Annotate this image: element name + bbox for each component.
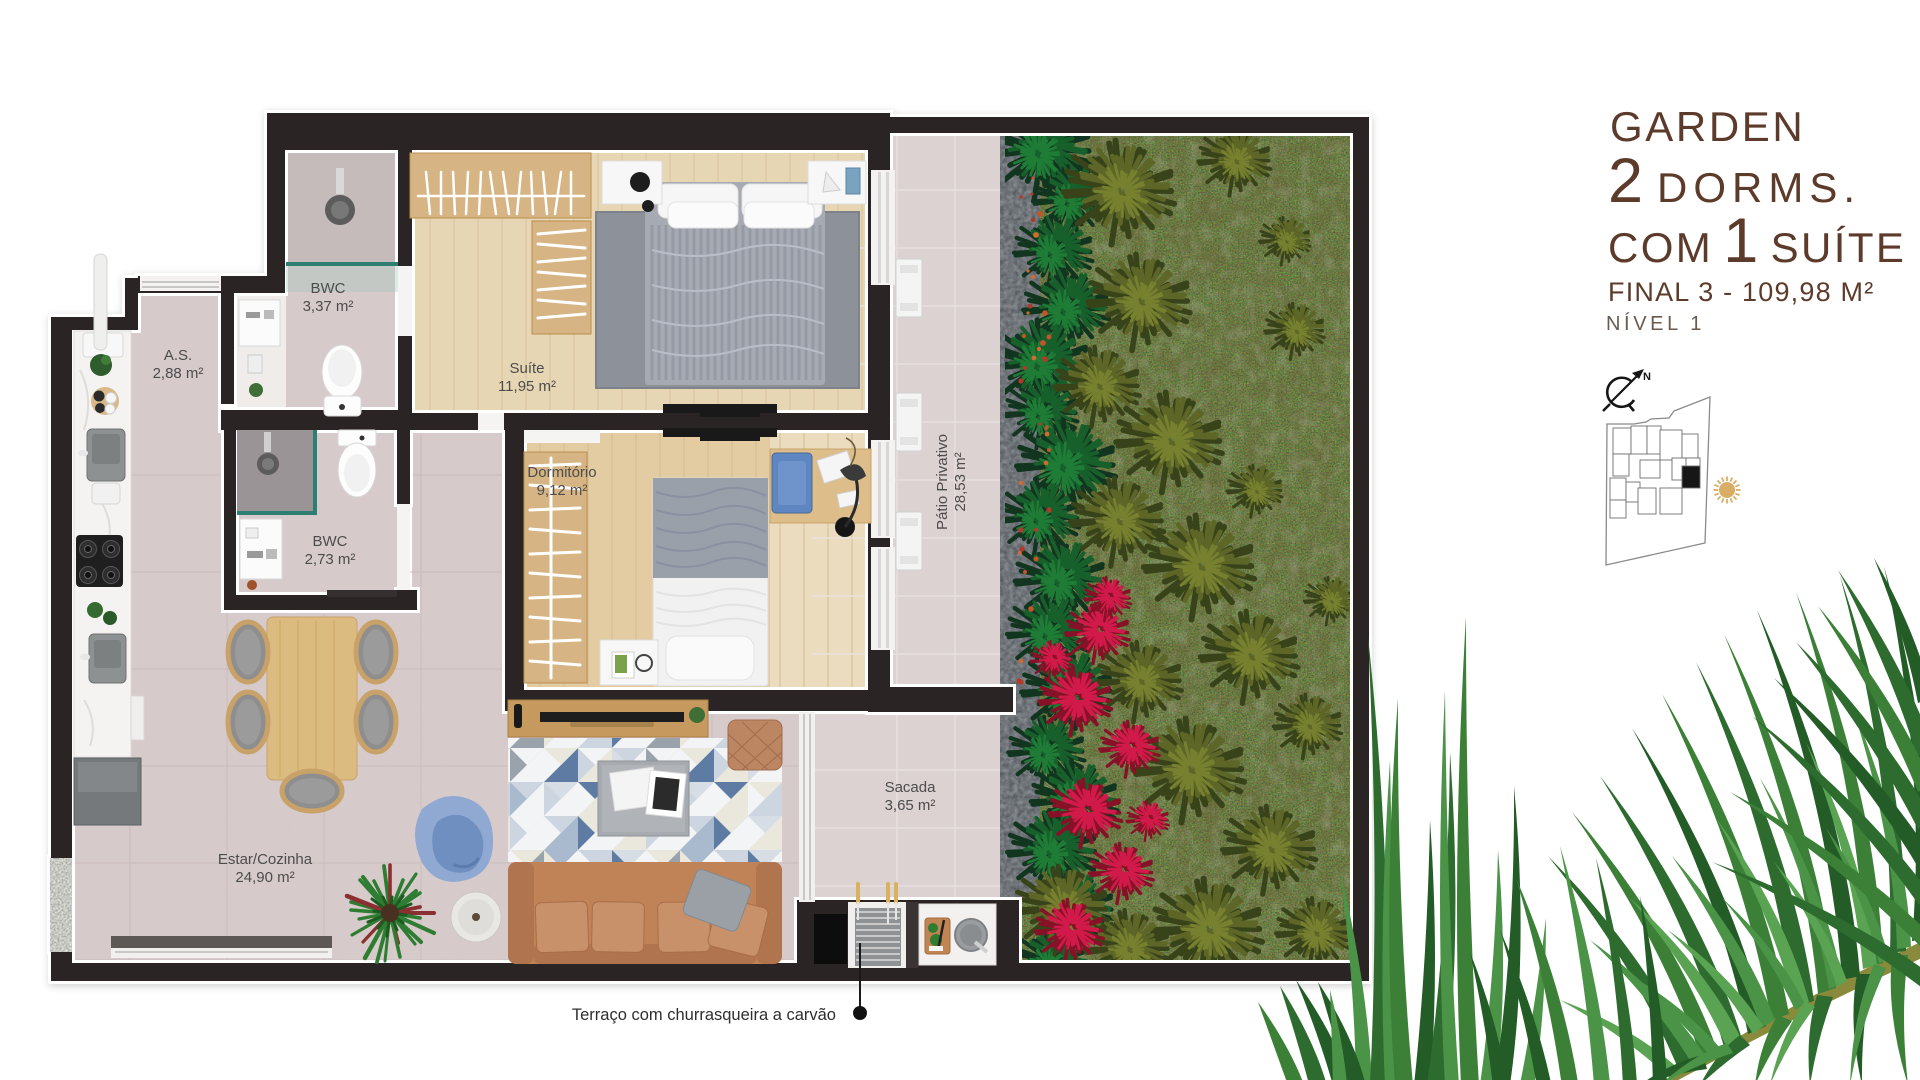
svg-text:2,88 m²: 2,88 m²: [153, 365, 204, 382]
svg-text:Dormitório: Dormitório: [527, 464, 596, 481]
svg-text:Terraço com churrasqueira a ca: Terraço com churrasqueira a carvão: [572, 1006, 836, 1024]
svg-text:A.S.: A.S.: [164, 347, 192, 364]
svg-text:NÍVEL 1: NÍVEL 1: [1606, 312, 1705, 335]
svg-text:Sacada: Sacada: [885, 779, 937, 796]
svg-text:BWC: BWC: [313, 533, 348, 550]
svg-text:GARDEN: GARDEN: [1610, 103, 1805, 150]
svg-text:24,90 m²: 24,90 m²: [235, 869, 294, 886]
svg-text:9,12 m²: 9,12 m²: [537, 482, 588, 499]
svg-text:11,95 m²: 11,95 m²: [498, 378, 556, 395]
svg-text:3,37 m²: 3,37 m²: [303, 298, 354, 315]
svg-text:FINAL 3 - 109,98 M²: FINAL 3 - 109,98 M²: [1608, 277, 1874, 307]
svg-text:Estar/Cozinha: Estar/Cozinha: [218, 851, 313, 868]
svg-text:28,53 m²: 28,53 m²: [952, 452, 969, 511]
svg-text:2,73 m²: 2,73 m²: [305, 551, 356, 568]
svg-text:Pátio Privativo: Pátio Privativo: [934, 434, 951, 530]
svg-text:N: N: [1643, 371, 1651, 383]
svg-text:3,65 m²: 3,65 m²: [885, 797, 936, 814]
svg-text:Suíte: Suíte: [509, 360, 544, 377]
svg-text:BWC: BWC: [311, 280, 346, 297]
